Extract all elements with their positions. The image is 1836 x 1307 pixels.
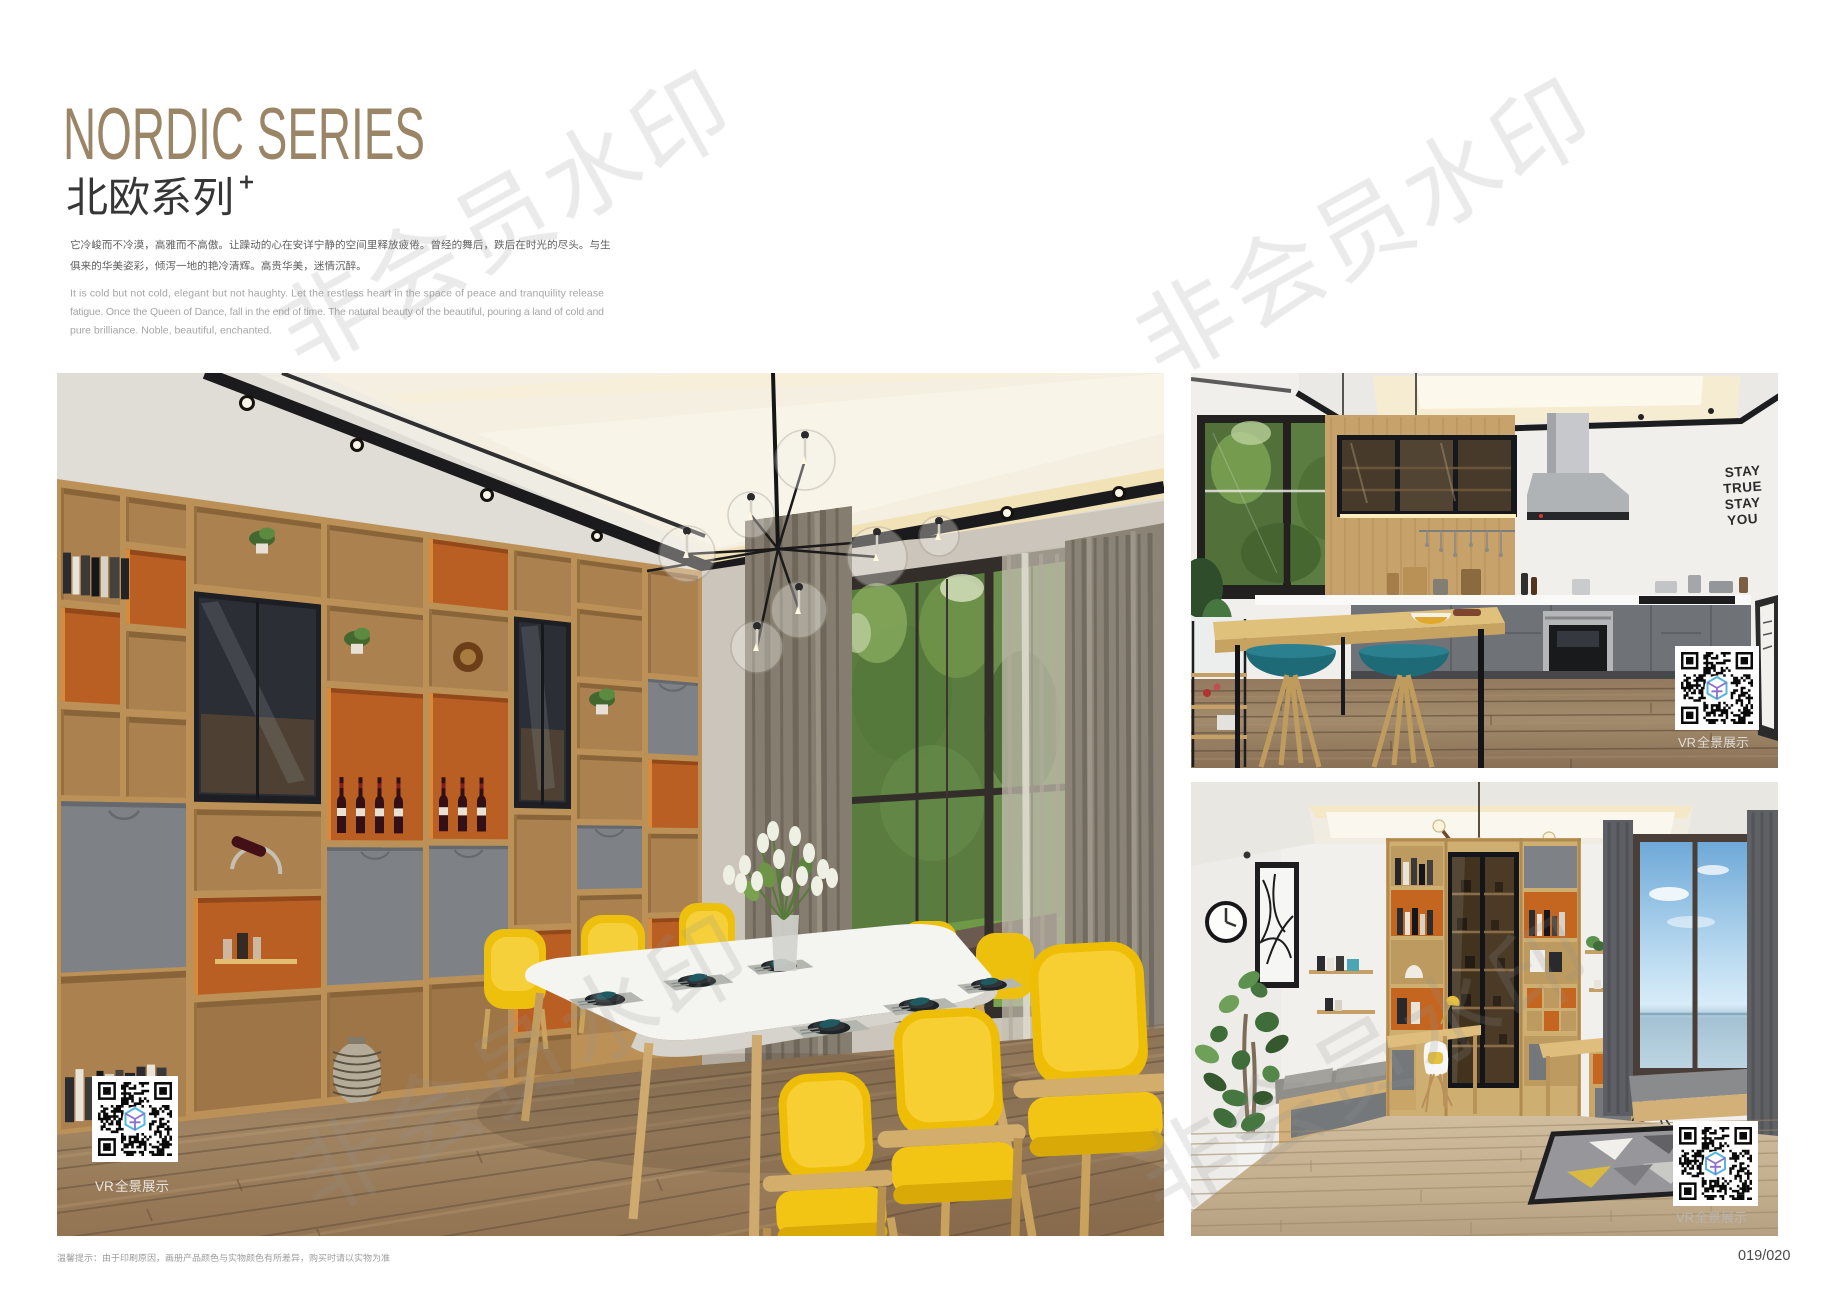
svg-text:VR: VR [1678,735,1696,750]
svg-text:VR: VR [1676,1210,1694,1225]
svg-text:YOU: YOU [1727,511,1759,528]
svg-text:It is cold but not cold, elega: It is cold but not cold, elegant but not… [70,288,604,300]
svg-text:STAY: STAY [1724,495,1761,512]
svg-text:STAY: STAY [1724,463,1761,480]
svg-text:pure brilliance. Noble, beauti: pure brilliance. Noble, beautiful, encha… [70,325,272,337]
svg-text:TRUE: TRUE [1723,479,1763,497]
svg-text:019/020: 019/020 [1738,1248,1790,1264]
svg-text:NORDIC SERIES: NORDIC SERIES [63,94,425,175]
svg-text:VR: VR [95,1179,114,1194]
